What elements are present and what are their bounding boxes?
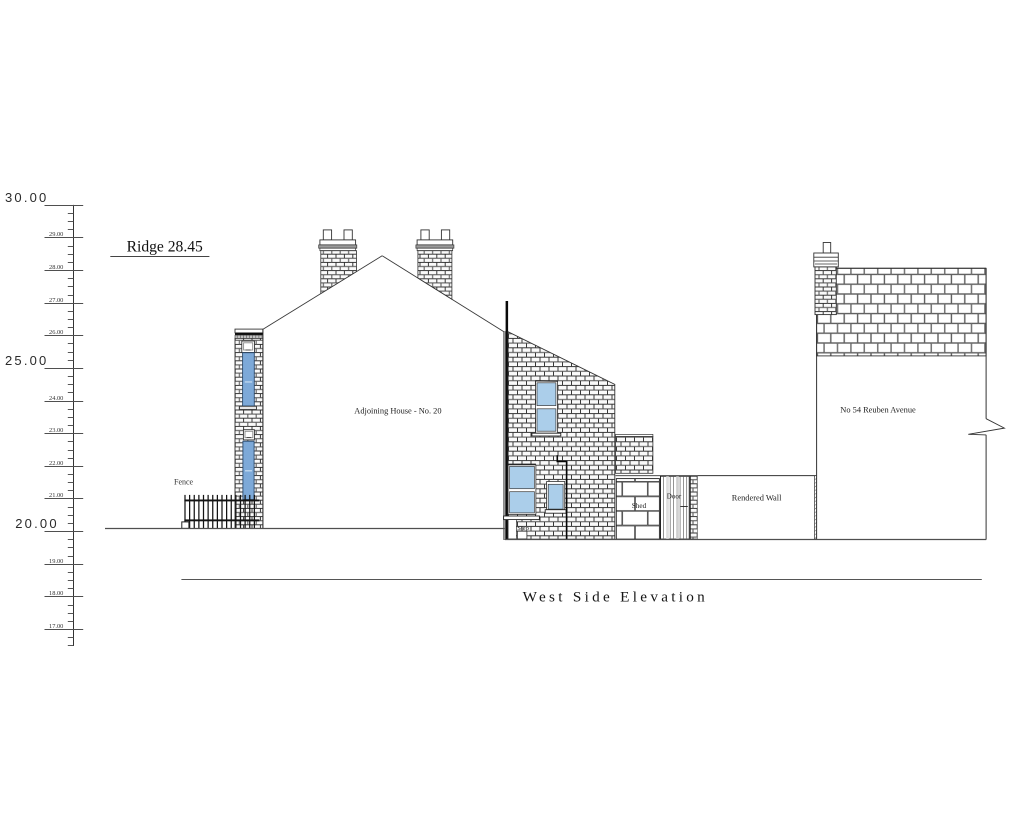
svg-text:26.00: 26.00 [49, 329, 63, 336]
svg-text:25.00: 25.00 [5, 353, 49, 368]
svg-text:19.00: 19.00 [49, 558, 63, 565]
svg-text:23.00: 23.00 [49, 427, 63, 434]
svg-text:27.00: 27.00 [49, 297, 63, 304]
svg-text:18.00: 18.00 [49, 590, 63, 597]
svg-text:17.00: 17.00 [49, 623, 63, 630]
svg-text:Adjoining House - No. 20: Adjoining House - No. 20 [354, 406, 441, 415]
svg-text:30.00: 30.00 [5, 190, 49, 205]
svg-text:Fence: Fence [174, 478, 194, 487]
svg-text:21.00: 21.00 [49, 492, 63, 499]
svg-text:Rendered Wall: Rendered Wall [732, 494, 782, 503]
svg-text:Step: Step [517, 525, 529, 532]
svg-text:Ridge 28.45: Ridge 28.45 [127, 239, 203, 256]
svg-text:22.00: 22.00 [49, 460, 63, 467]
svg-text:No 54 Reuben Avenue: No 54 Reuben Avenue [840, 406, 916, 415]
svg-text:West Side Elevation: West Side Elevation [523, 588, 708, 605]
svg-text:20.00: 20.00 [15, 516, 59, 531]
svg-text:Shed: Shed [632, 502, 647, 510]
svg-text:29.00: 29.00 [49, 231, 63, 238]
svg-text:24.00: 24.00 [49, 395, 63, 402]
svg-text:Door: Door [667, 492, 682, 500]
svg-text:28.00: 28.00 [49, 264, 63, 271]
